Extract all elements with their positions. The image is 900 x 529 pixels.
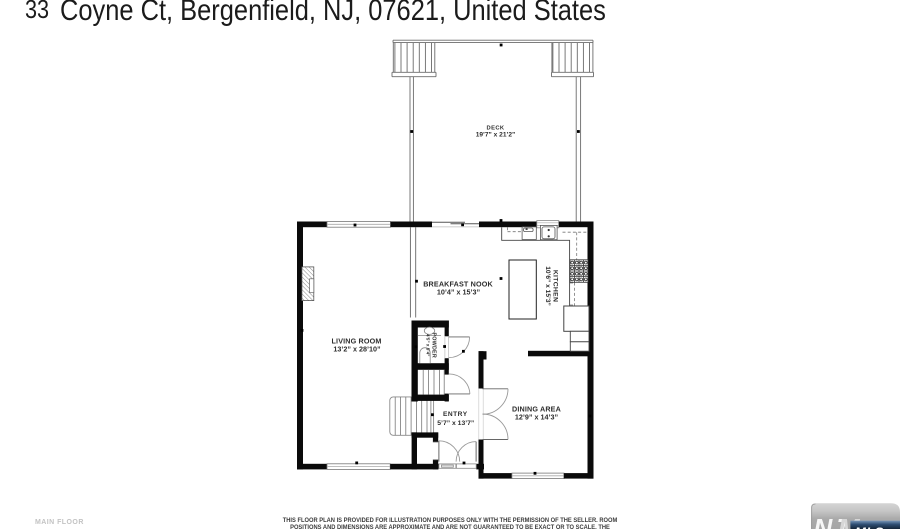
svg-text:MLS: MLS: [855, 525, 884, 529]
